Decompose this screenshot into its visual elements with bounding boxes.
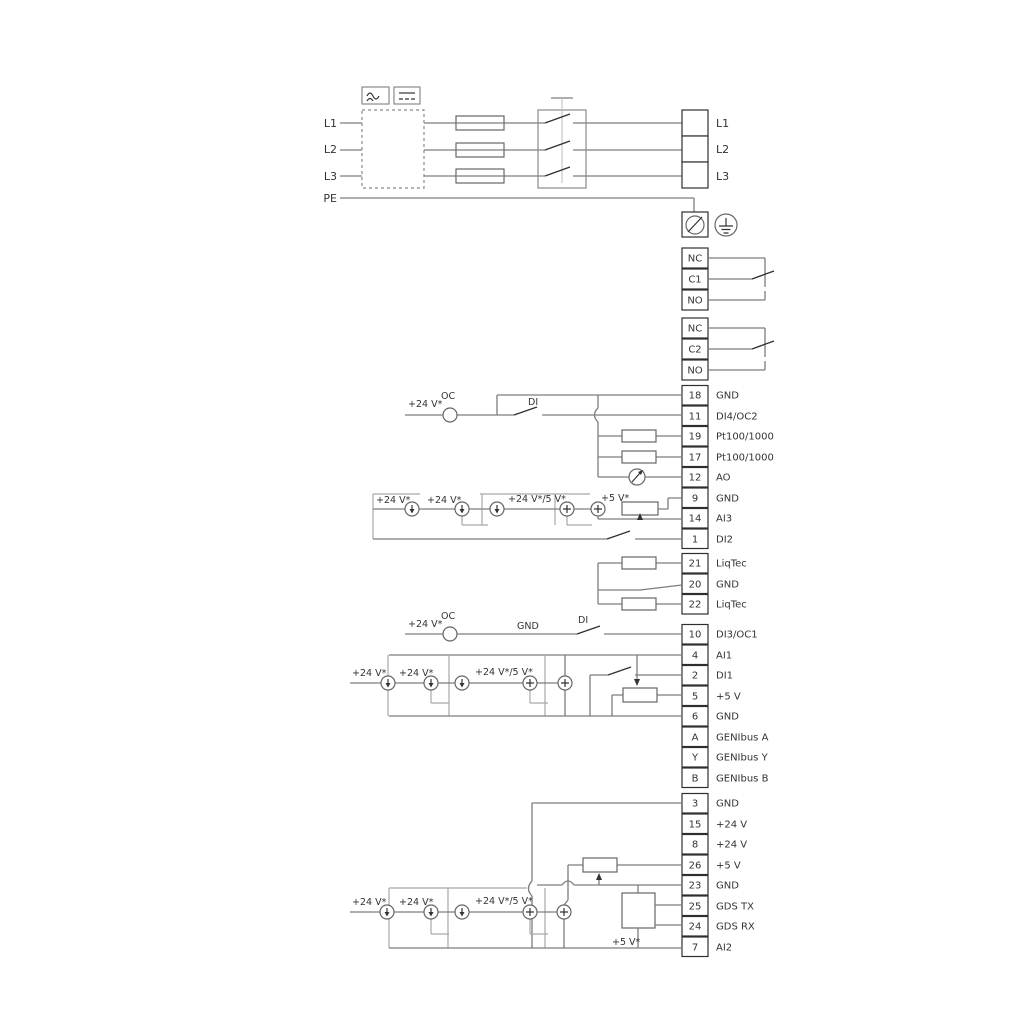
- terminal-strip-d: 3 15 8 26 23 25 24 7 GND +24 V +24 V +5 …: [682, 794, 755, 957]
- terminal-number: 5: [692, 692, 698, 703]
- terminal-number: 11: [689, 412, 702, 423]
- wire-label: +24 V*: [352, 668, 387, 679]
- terminal-label: GND: [716, 712, 739, 723]
- resistor-icon: [622, 557, 656, 569]
- terminal-number: 26: [689, 861, 702, 872]
- phase-out-label-l2: L2: [716, 143, 729, 156]
- terminal-number: 20: [689, 580, 702, 591]
- filter-box: [362, 87, 424, 188]
- terminal-label: GDS RX: [716, 922, 755, 933]
- terminal-label: GENIbus Y: [716, 753, 769, 764]
- terminal-number: 24: [689, 922, 702, 933]
- main-switch-icon: [538, 98, 586, 188]
- relay-1-block: NC C1 NO: [682, 248, 774, 310]
- reference-source-chain-a: +24 V* +24 V* +24 V*/5 V* +5 V*: [373, 493, 630, 539]
- di-switch-icon: [577, 626, 600, 634]
- relay1-c1: C1: [688, 275, 701, 286]
- resistor-icon: [622, 451, 656, 463]
- mains-input-section: L1 L2 L3 PE: [323, 87, 737, 237]
- terminal-label: AO: [716, 473, 731, 484]
- mains-wires: [340, 123, 694, 212]
- terminal-number: 4: [692, 651, 698, 662]
- terminal-label: AI2: [716, 943, 732, 954]
- relay2-no: NO: [687, 366, 702, 377]
- terminal-number: 1: [692, 535, 698, 546]
- relay-2-block: NC C2 NO: [682, 318, 774, 380]
- terminal-number: 9: [692, 494, 698, 505]
- di1-switch-icon: [608, 667, 631, 675]
- wiper-arrow-icon: [634, 679, 640, 686]
- terminal-strip-c: 10 4 2 5 6 A Y B DI3/OC1 AI1 DI1 +5 V GN…: [682, 625, 769, 788]
- terminal-label: AI3: [716, 514, 732, 525]
- terminal-number: 10: [689, 630, 702, 641]
- wire-label: +24 V*: [376, 495, 411, 506]
- phase-label-l3: L3: [324, 170, 337, 183]
- wire-label: +24 V*/5 V*: [475, 896, 533, 907]
- ac-icon: [362, 87, 389, 104]
- terminal-number: 7: [692, 943, 698, 954]
- terminal-number: 8: [692, 840, 698, 851]
- relay2-nc: NC: [688, 324, 702, 335]
- phase-label-l1: L1: [324, 117, 337, 130]
- terminal-label: +5 V: [716, 861, 741, 872]
- terminal-number: 19: [689, 432, 702, 443]
- terminal-number: 12: [689, 473, 702, 484]
- terminal-label: LiqTec: [716, 600, 747, 611]
- relay1-contact-icon: [752, 271, 774, 279]
- wiper-arrow-icon: [596, 873, 602, 880]
- relay2-c2: C2: [688, 345, 701, 356]
- liqtec-sensor-wiring: [598, 557, 682, 610]
- pe-screw-icon: [682, 212, 708, 237]
- terminal-number: 21: [689, 559, 702, 570]
- terminal-label: LiqTec: [716, 559, 747, 570]
- terminal-number: 15: [689, 820, 702, 831]
- terminal-number: 23: [689, 881, 702, 892]
- terminal-number: 3: [692, 799, 698, 810]
- terminal-label: +5 V: [716, 692, 741, 703]
- wiring-diagram: L1 L2 L3 PE: [0, 0, 1024, 1024]
- strip-d-wiring: +5 V* +24 V* +24 V* +24 V*/5 V*: [350, 803, 682, 948]
- terminal-label: GND: [716, 580, 739, 591]
- oc-circle-icon: [443, 408, 457, 422]
- wire-label: +24 V*/5 V*: [508, 494, 566, 505]
- terminal-strip-a: 18 11 19 17 12 9 14 1 GND DI4/OC2 Pt100/…: [682, 386, 774, 549]
- terminal-number: 18: [689, 391, 702, 402]
- terminal-label: GND: [716, 799, 739, 810]
- terminal-number: 14: [689, 514, 702, 525]
- terminal-label: GND: [716, 494, 739, 505]
- earth-icon: [715, 214, 737, 236]
- wire-label: DI: [578, 615, 588, 626]
- terminal-label: Pt100/1000: [716, 453, 774, 464]
- wire-label: +24 V*: [352, 897, 387, 908]
- relay1-nc: NC: [688, 254, 702, 265]
- terminal-number: 6: [692, 712, 698, 723]
- relay1-no: NO: [687, 296, 702, 307]
- terminal-number: 22: [689, 600, 702, 611]
- wire-label: OC: [441, 611, 455, 622]
- strip-c-wiring: +24 V* OC GND DI +24 V* +24 V* +24 V*/5 …: [350, 611, 682, 716]
- terminal-number: B: [692, 774, 699, 785]
- terminal-label: GENIbus A: [716, 733, 769, 744]
- terminal-number: Y: [691, 753, 699, 764]
- ai1-potentiometer: [612, 688, 682, 716]
- reference-source-chain-b: +24 V* +24 V* +24 V*/5 V*: [350, 655, 572, 716]
- terminal-label: AI1: [716, 651, 732, 662]
- fuse-icons: [456, 116, 504, 183]
- terminal-label: GND: [716, 881, 739, 892]
- mains-terminal-block: L1 L2 L3: [682, 110, 729, 188]
- relay2-contact-icon: [752, 341, 774, 349]
- terminal-label: Pt100/1000: [716, 432, 774, 443]
- phase-label-l2: L2: [324, 143, 337, 156]
- resistor-icon: [622, 598, 656, 610]
- wire-label: +5 V*: [612, 937, 641, 948]
- wiring-diagram-page: L1 L2 L3 PE: [0, 0, 1024, 1024]
- terminal-label: GND: [716, 391, 739, 402]
- terminal-label: DI2: [716, 535, 733, 546]
- terminal-label: DI1: [716, 671, 733, 682]
- oc-circle-icon: [443, 627, 457, 641]
- wire-label: +24 V*/5 V*: [475, 667, 533, 678]
- terminal-number: 2: [692, 671, 698, 682]
- resistor-icon: [622, 430, 656, 442]
- gds-sensor-box: +5 V*: [612, 885, 682, 948]
- terminal-label: +24 V: [716, 840, 747, 851]
- di2-switch-icon: [607, 531, 630, 539]
- terminal-strip-b: 21 20 22 LiqTec GND LiqTec: [682, 554, 747, 615]
- terminal-number: A: [692, 733, 699, 744]
- terminal-number: 25: [689, 902, 702, 913]
- wire-label: +24 V*: [408, 399, 443, 410]
- terminal-number: 17: [689, 453, 702, 464]
- phase-out-label-l3: L3: [716, 170, 729, 183]
- terminal-label: GDS TX: [716, 902, 754, 913]
- terminal-label: GENIbus B: [716, 774, 769, 785]
- terminal-label: DI4/OC2: [716, 412, 758, 423]
- wire-label: OC: [441, 391, 455, 402]
- dc-icon: [394, 87, 420, 104]
- di-switch-icon: [514, 407, 537, 415]
- phase-label-pe: PE: [323, 192, 337, 205]
- terminal-label: DI3/OC1: [716, 630, 758, 641]
- reference-source-chain-c: +24 V* +24 V* +24 V*/5 V*: [350, 888, 571, 948]
- terminal-label: +24 V: [716, 820, 747, 831]
- phase-out-label-l1: L1: [716, 117, 729, 130]
- strip-a-wiring: +24 V* OC DI +24 V* +24 V* +24 V*/5 V* +…: [373, 391, 682, 539]
- wire-label: +24 V*: [408, 619, 443, 630]
- wire-label: DI: [528, 397, 538, 408]
- wire-label: GND: [517, 621, 539, 632]
